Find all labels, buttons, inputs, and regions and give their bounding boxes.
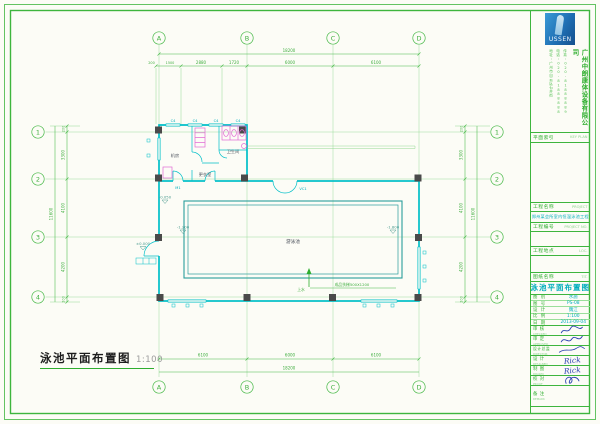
drawing-title-text: 泳池平面布置图: [40, 351, 131, 365]
grid-bubbles: A B C D A B C D 1 2 3 4 1 2 3 4: [32, 32, 503, 393]
sign-row-remark: 备 注REMARK: [531, 386, 590, 407]
title-block: USSEN 地址:广州市白云区石井街 电话:020-81888888 传真:02…: [530, 11, 590, 414]
location-label: 工程地点: [533, 247, 554, 254]
sheet-title-value: 泳池平面布置图: [531, 282, 590, 293]
grid-row-label: 2: [36, 175, 40, 183]
dim-left-overall: 11600: [49, 207, 54, 220]
company-contact: 传真:020-81888889: [563, 49, 568, 131]
dim-right: 200: [460, 296, 464, 302]
grid-row-label: 4: [495, 293, 499, 301]
company-logo-icon: USSEN: [545, 13, 575, 45]
grid-row-label: 3: [36, 233, 40, 241]
sheet-title-value-row: 泳池平面布置图: [531, 282, 590, 295]
dim-left: 4100: [61, 202, 66, 213]
grid-axes: [46, 45, 491, 377]
level-deep: -1.800: [387, 225, 400, 230]
key-plan-label: 平面索引: [533, 134, 554, 141]
window-tag: C4: [214, 119, 220, 123]
logo-figure-icon: [555, 14, 565, 35]
level-hall: -0.050: [159, 195, 172, 200]
drawing-sheet: A B C D A B C D 1 2 3 4 1 2 3 4 18200 20…: [0, 0, 600, 424]
dim-top: 1500: [166, 61, 175, 65]
key-plan-en: KEY PLAN: [570, 135, 587, 139]
dim-bottom: 6100: [198, 353, 209, 358]
info-label: 图 别: [531, 294, 557, 300]
drawing-title: 泳池平面布置图1:100: [40, 347, 163, 369]
inlet-label: 上水: [297, 287, 305, 292]
grid-col-label: C: [331, 383, 336, 391]
dim-top: 6000: [285, 60, 296, 65]
grid-col-label: D: [416, 34, 421, 42]
window-tag: C4: [171, 119, 177, 123]
company-contact: 地址:广州市白云区石井街: [549, 49, 554, 131]
grid-col-label: D: [416, 383, 421, 391]
key-plan-box: [531, 143, 590, 203]
dim-top-overall: 18200: [283, 48, 296, 53]
drawing-scale: 1:100: [136, 355, 163, 365]
info-label: 设 计: [531, 307, 557, 313]
grid-row-label: 3: [495, 233, 499, 241]
grid-col-label: C: [331, 34, 336, 42]
remark-empty: [555, 395, 589, 399]
level-entry: ±0.000: [136, 241, 151, 246]
spacer: [531, 232, 590, 247]
project-no-en: PROJECT NO.: [564, 225, 587, 229]
dim-bottom: 6000: [285, 353, 296, 358]
logo-section: USSEN: [531, 11, 590, 47]
dim-left: 4200: [61, 261, 66, 272]
pool-label: 游泳池: [286, 238, 300, 245]
project-en: PROJECT: [572, 205, 588, 209]
sign-label-en: REMARK: [533, 397, 555, 401]
room-label-wc: 卫生间: [227, 148, 240, 155]
sheet-title-label: 图纸名称: [533, 273, 554, 280]
grid-row-label: 1: [495, 128, 499, 136]
company-contact: 电话:020-81888888: [556, 49, 561, 131]
dim-left: 200: [62, 126, 66, 132]
swimming-pool: 游泳池 -1.200 -1.800 -0.050 ±0.000 上水 成品扶梯5…: [136, 195, 402, 293]
dim-bottom-overall: 18200: [283, 366, 296, 371]
door-tag-vc1: VC1: [299, 187, 306, 191]
dim-right: 4200: [459, 261, 464, 272]
grid-col-label: B: [245, 383, 249, 391]
dim-right: 3300: [459, 149, 464, 160]
grid-row-label: 1: [36, 128, 40, 136]
dim-right-overall: 11600: [471, 207, 476, 220]
project-no-label: 工程编号: [533, 223, 554, 230]
title-underline: [40, 368, 154, 369]
sign-row: 校 对PROOF: [531, 376, 590, 386]
dim-right: 200: [460, 126, 464, 132]
grid-col-label: B: [245, 34, 249, 42]
info-value: 魏江: [557, 307, 590, 313]
key-plan-row: 平面索引 KEY PLAN: [531, 132, 590, 143]
dim-top: 1720: [229, 60, 240, 65]
dim-top: 2880: [196, 60, 207, 65]
grid-row-label: 4: [36, 293, 40, 301]
project-no-row: 工程编号 PROJECT NO.: [531, 222, 590, 232]
sheet-title-en: TIT.: [581, 275, 587, 279]
dim-left: 200: [62, 296, 66, 302]
spacer: [531, 256, 590, 273]
project-name: 郑州某会所室内恒温泳池工程: [532, 214, 589, 220]
dimensions: 18200 200 1500 2880 1720 6000 6100 6100 …: [49, 48, 491, 372]
info-value: 1:100: [557, 314, 590, 319]
location-row: 工程地点 LOC.: [531, 246, 590, 256]
sheet-title-row: 图纸名称 TIT.: [531, 272, 590, 282]
window-tag: C4: [236, 119, 242, 123]
info-label: 图 号: [531, 301, 557, 307]
company-name: 广州中朗康体设备有限公司: [571, 49, 589, 131]
dim-top: 200: [148, 61, 154, 65]
dim-right: 4100: [459, 202, 464, 213]
dim-top: 6100: [371, 60, 382, 65]
window-tag: C4: [193, 119, 199, 123]
room-label-changing: 更衣室: [199, 171, 212, 178]
door-tag-m1: M1: [175, 186, 180, 190]
dim-left: 3300: [61, 149, 66, 160]
ladder-note: 成品扶梯500X1200: [335, 282, 370, 287]
location-en: LOC.: [579, 249, 587, 253]
project-label: 工程名称: [533, 203, 554, 210]
logo-text: USSEN: [549, 36, 572, 43]
info-value: PS-08: [557, 301, 590, 306]
windows-doors: [136, 124, 426, 307]
level-shallow: -1.200: [177, 225, 190, 230]
grid-col-label: A: [157, 383, 162, 391]
dim-bottom: 6100: [371, 353, 382, 358]
company-section: 地址:广州市白云区石井街 电话:020-81888888 传真:020-8188…: [531, 47, 590, 133]
sign-label-en: PROOF: [533, 382, 555, 386]
info-label: 比 例: [531, 313, 557, 319]
info-label: 日 期: [531, 320, 557, 326]
building-walls: [159, 125, 419, 301]
room-label-plant: 机房: [171, 152, 179, 159]
grid-row-label: 2: [495, 175, 499, 183]
info-value: 水施: [557, 294, 590, 300]
project-row: 工程名称 PROJECT: [531, 202, 590, 212]
grid-col-label: A: [157, 34, 162, 42]
